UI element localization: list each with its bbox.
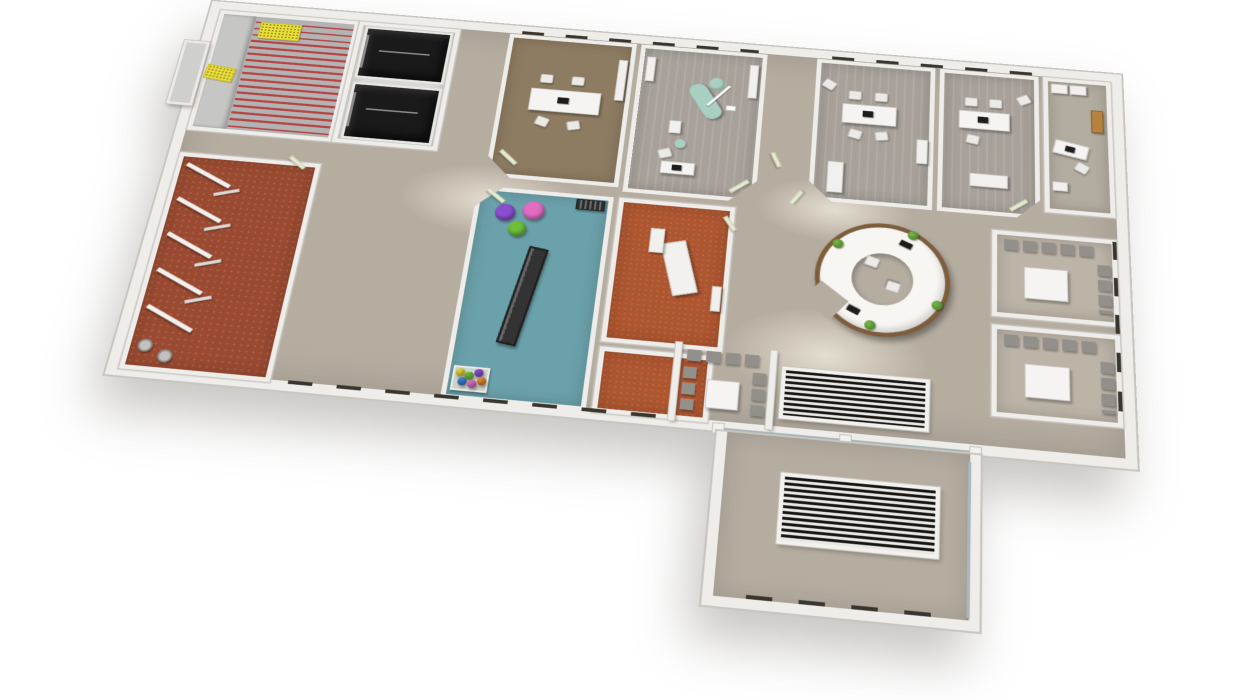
waiting-table <box>704 379 739 411</box>
xray-column <box>648 228 665 254</box>
chair <box>566 120 580 130</box>
cabinet <box>1051 84 1068 95</box>
laptop <box>671 164 681 170</box>
render-canvas <box>0 0 1260 700</box>
dental-cart <box>668 120 682 134</box>
plant <box>932 300 943 310</box>
chair <box>874 131 889 141</box>
laptop <box>557 97 569 104</box>
chair-column <box>1097 265 1112 315</box>
cabinet <box>916 139 928 164</box>
side-table <box>1052 181 1068 192</box>
clinic-floorplan <box>48 1 1147 680</box>
chair <box>875 92 888 102</box>
reception-desk <box>811 218 951 343</box>
dental-lamp-head <box>725 105 736 111</box>
chair <box>989 99 1002 109</box>
chair-column <box>1100 362 1115 415</box>
cabinet <box>1069 85 1086 96</box>
chair <box>540 74 554 84</box>
tactile-warning-pad <box>257 22 302 41</box>
laptop <box>863 111 874 118</box>
chair <box>571 76 585 86</box>
room-treatment-3 <box>937 69 1040 220</box>
wardrobe-wood <box>1091 110 1104 133</box>
waiting-table <box>1025 364 1071 402</box>
exam-bench <box>826 161 844 193</box>
plant <box>908 231 919 241</box>
chair <box>965 97 978 107</box>
chair <box>848 90 862 100</box>
floorplan-3d <box>128 0 1128 648</box>
laptop <box>978 116 988 123</box>
waiting-table <box>1024 267 1068 303</box>
